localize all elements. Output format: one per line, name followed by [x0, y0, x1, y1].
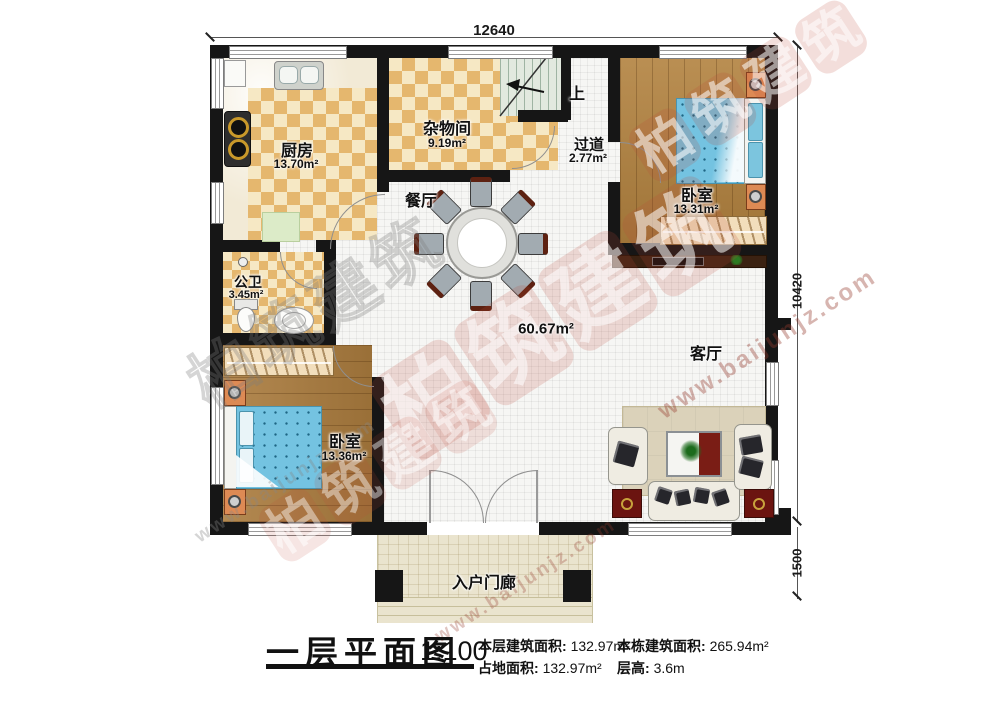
- legend-item-value: 3.6m: [654, 660, 685, 676]
- kitchen-corner-cabinet: [224, 60, 246, 87]
- bathroom-sink-ring: [282, 312, 306, 329]
- kitchen-sink-basin: [279, 66, 298, 84]
- dimension-label-porch: 1500: [790, 549, 805, 578]
- stairs-up-label: 上: [569, 80, 585, 104]
- porch-pillar: [563, 570, 591, 602]
- wall-bath-bottom: [210, 333, 336, 345]
- window-top-kitchen: [229, 46, 347, 59]
- window-left-kitchen-b: [211, 182, 224, 224]
- porch-pillar: [375, 570, 403, 602]
- window-top-storage: [448, 46, 553, 59]
- legend-item-label: 本栋建筑面积:: [617, 638, 706, 654]
- legend-item-label: 占地面积:: [478, 660, 539, 676]
- area-label-bedroom-right: 13.31m²: [674, 202, 719, 216]
- window-top-bedroom: [659, 46, 747, 59]
- area-label-storage: 9.19m²: [428, 136, 466, 150]
- legend-item-building-area: 本栋建筑面积: 265.94m²: [617, 636, 769, 656]
- kitchen-sink-basin: [300, 66, 319, 84]
- legend-item-land-area: 占地面积: 132.97m²: [478, 658, 602, 678]
- dining-table-top: [457, 218, 507, 268]
- area-label-corridor: 2.77m²: [569, 151, 607, 165]
- dimension-label-top: 12640: [473, 22, 515, 39]
- chaise: [734, 424, 772, 490]
- legend-item-value: 132.97m²: [543, 660, 602, 676]
- window-bottom-living: [628, 523, 732, 536]
- plant: [680, 440, 702, 462]
- window-left-bedroom: [211, 387, 224, 485]
- sofa-cushion: [693, 487, 710, 504]
- window-right-living-a: [766, 362, 779, 406]
- bathroom-lamp: [238, 257, 248, 267]
- area-label-kitchen: 13.70m²: [274, 157, 319, 171]
- bed-pillow: [748, 103, 763, 141]
- bed-pillow: [748, 142, 763, 178]
- room-label-living: 客厅: [690, 340, 722, 364]
- tv-screen: [652, 257, 704, 266]
- nightstand: [746, 184, 766, 210]
- area-label-bathroom: 3.45m²: [229, 289, 264, 301]
- nightstand: [224, 380, 246, 406]
- dining-chair: [518, 233, 548, 255]
- wall-bedroom-right-left-a: [608, 58, 620, 142]
- area-label-bedroom-left: 13.36m²: [322, 449, 367, 463]
- legend-item-storey-height: 层高: 3.6m: [617, 658, 685, 678]
- dining-chair: [470, 177, 492, 207]
- wardrobe: [660, 216, 767, 245]
- legend-item-label: 层高:: [617, 660, 650, 676]
- side-table: [612, 489, 642, 518]
- side-table: [744, 489, 774, 518]
- dining-chair: [414, 233, 444, 255]
- nightstand: [224, 489, 246, 515]
- wall-bath-right: [324, 252, 336, 333]
- stove-burner: [228, 117, 249, 138]
- nightstand: [746, 72, 766, 98]
- bed-pillow: [239, 411, 254, 446]
- window-bottom-bedroom: [248, 523, 352, 536]
- wall-bedroom-left-right: [372, 377, 384, 522]
- kitchen-mat: [262, 212, 300, 242]
- floorplan-canvas: 12640 10420 1500: [0, 0, 1000, 706]
- wardrobe: [224, 347, 334, 376]
- porch-steps: [377, 597, 593, 623]
- window-left-kitchen-a: [211, 58, 224, 109]
- sofa-cushion: [674, 489, 692, 507]
- room-label-porch: 入户门廊: [452, 569, 516, 593]
- chaise-cushion: [739, 434, 764, 456]
- staircase-arrow: [498, 56, 568, 120]
- dimension-label-right: 10420: [790, 273, 805, 309]
- dining-chair: [470, 281, 492, 311]
- legend-item-label: 本层建筑面积:: [478, 638, 567, 654]
- area-label-hall: 60.67m²: [518, 321, 574, 338]
- room-label-dining: 餐厅: [405, 187, 437, 211]
- stove-burner: [228, 139, 249, 160]
- bed-sheet-fold: [710, 98, 746, 182]
- legend-item-floor-area: 本层建筑面积: 132.97m²: [478, 636, 630, 656]
- plant: [730, 255, 743, 265]
- entrance-opening: [427, 522, 539, 535]
- legend-item-value: 265.94m²: [710, 638, 769, 654]
- wall-bay-step: [765, 318, 791, 330]
